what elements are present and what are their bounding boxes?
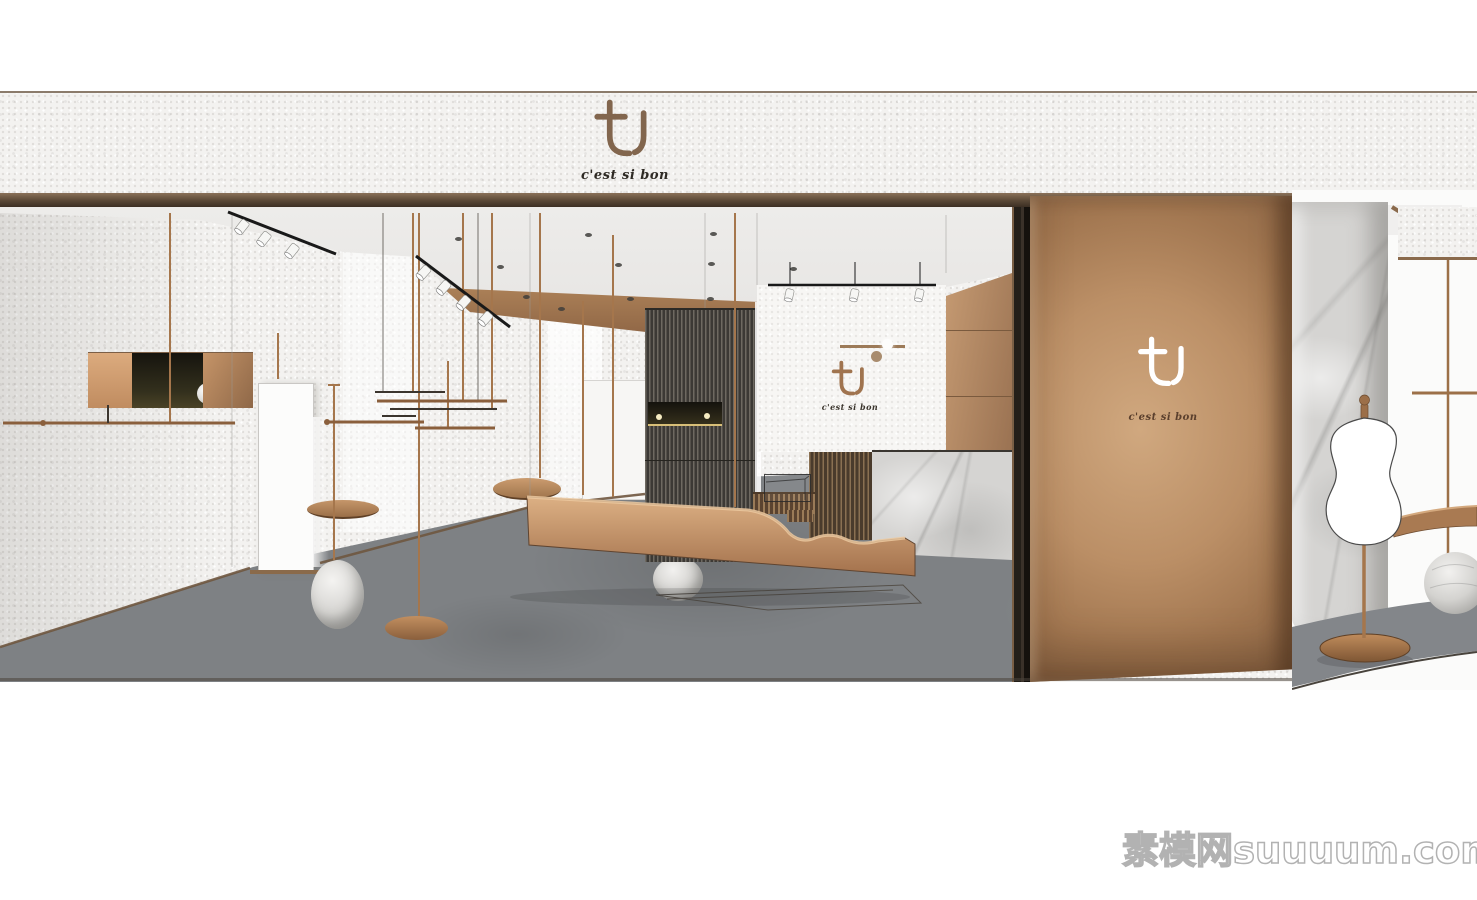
- copper-brand-column: c'est si bon: [1030, 196, 1292, 682]
- scene-canvas: c'est si bon: [0, 0, 1477, 900]
- fascia-sign: c'est si bon: [560, 96, 690, 192]
- display-window: [1292, 190, 1477, 690]
- column-tagline: c'est si bon: [1108, 412, 1218, 423]
- watermark-text: 素模网suuuum.com: [1122, 820, 1477, 874]
- brand-logo-icon: [1133, 332, 1195, 396]
- bench-shadow: [510, 588, 910, 606]
- corner-soffit-box: [1398, 207, 1477, 260]
- brand-logo-icon: [588, 98, 660, 164]
- window-scene: [1292, 190, 1477, 690]
- storefront-fascia: [0, 93, 1477, 193]
- spotlight-fixtures: [234, 219, 925, 328]
- fascia-tagline: c'est si bon: [560, 168, 690, 183]
